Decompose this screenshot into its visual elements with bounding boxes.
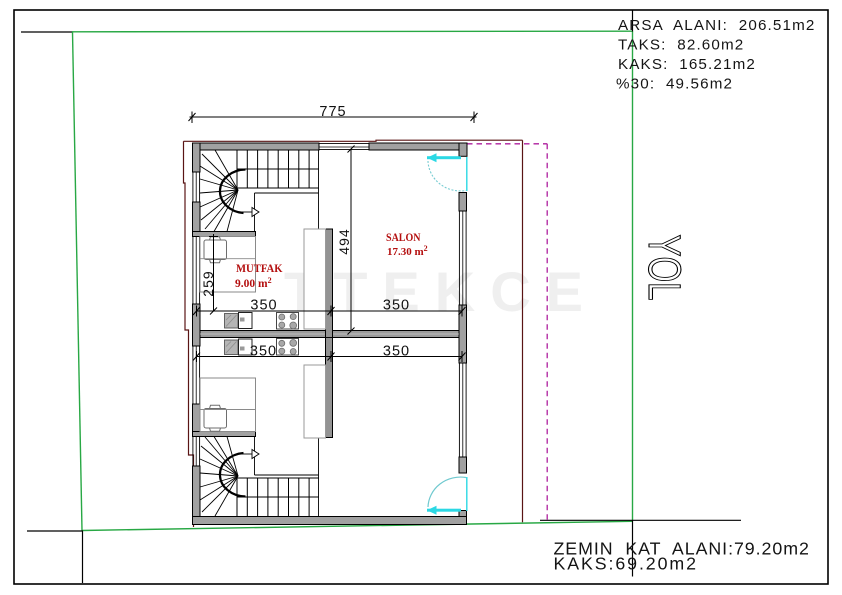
svg-text:775: 775	[319, 104, 346, 120]
svg-text:259: 259	[200, 270, 216, 296]
svg-text:KAKS:69.20m2: KAKS:69.20m2	[554, 554, 698, 574]
svg-text:350: 350	[250, 298, 277, 314]
svg-text:MUTFAK: MUTFAK	[236, 261, 283, 275]
svg-text:350: 350	[250, 343, 277, 359]
svg-text:494: 494	[336, 228, 352, 254]
svg-text:KAKS: 165.21m2: KAKS: 165.21m2	[618, 56, 756, 73]
svg-text:TAKS: 82.60m2: TAKS: 82.60m2	[618, 37, 744, 54]
svg-text:ARSA ALANI: 206.51m2: ARSA ALANI: 206.51m2	[618, 17, 816, 34]
svg-text:YOL: YOL	[639, 235, 690, 301]
svg-text:9.00 m2: 9.00 m2	[235, 276, 272, 290]
svg-text:SALON: SALON	[386, 230, 421, 244]
svg-text:350: 350	[383, 343, 410, 359]
svg-text:17.30 m2: 17.30 m2	[387, 244, 428, 258]
svg-text:350: 350	[383, 298, 410, 314]
svg-text:%30: 49.56m2: %30: 49.56m2	[616, 76, 733, 93]
